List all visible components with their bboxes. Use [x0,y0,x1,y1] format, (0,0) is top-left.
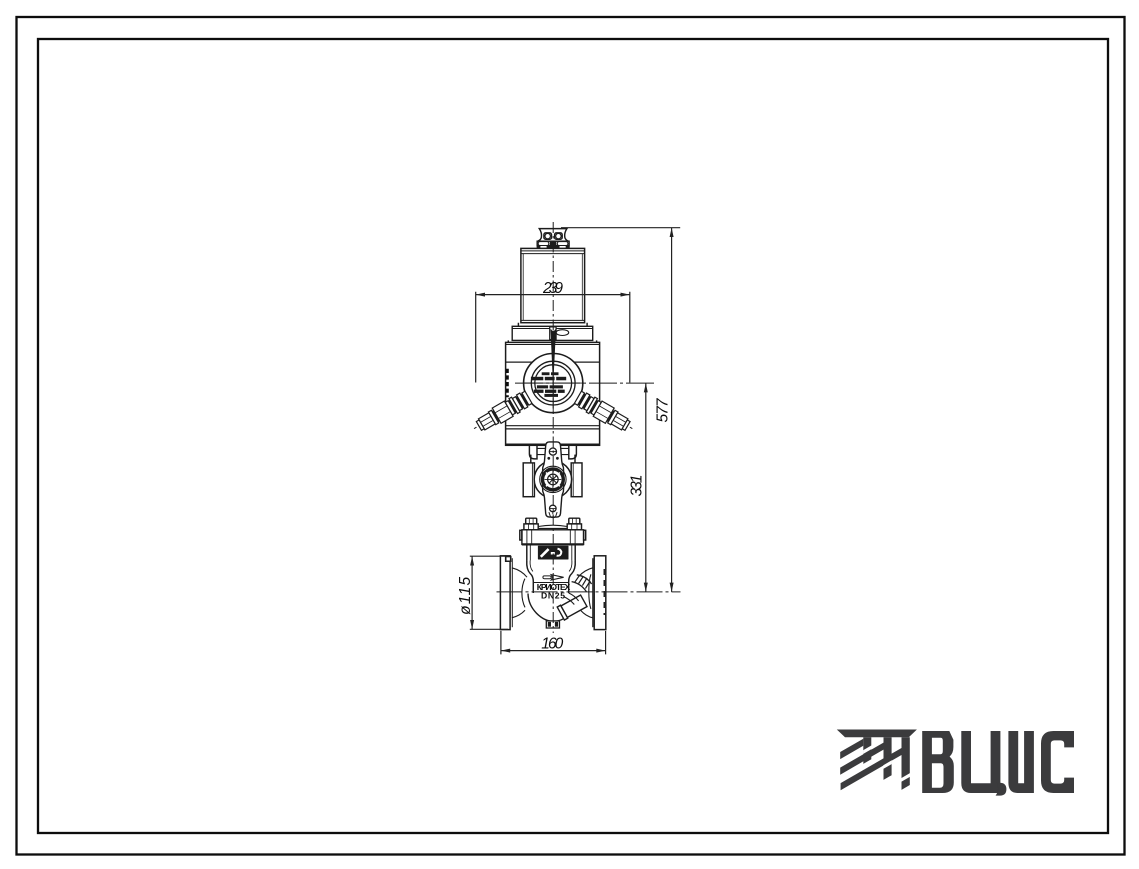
svg-text:160: 160 [541,636,563,653]
svg-text:577: 577 [654,397,671,422]
svg-text:ø115: ø115 [457,577,474,615]
svg-text:331: 331 [628,475,645,497]
svg-text:239: 239 [542,280,563,297]
